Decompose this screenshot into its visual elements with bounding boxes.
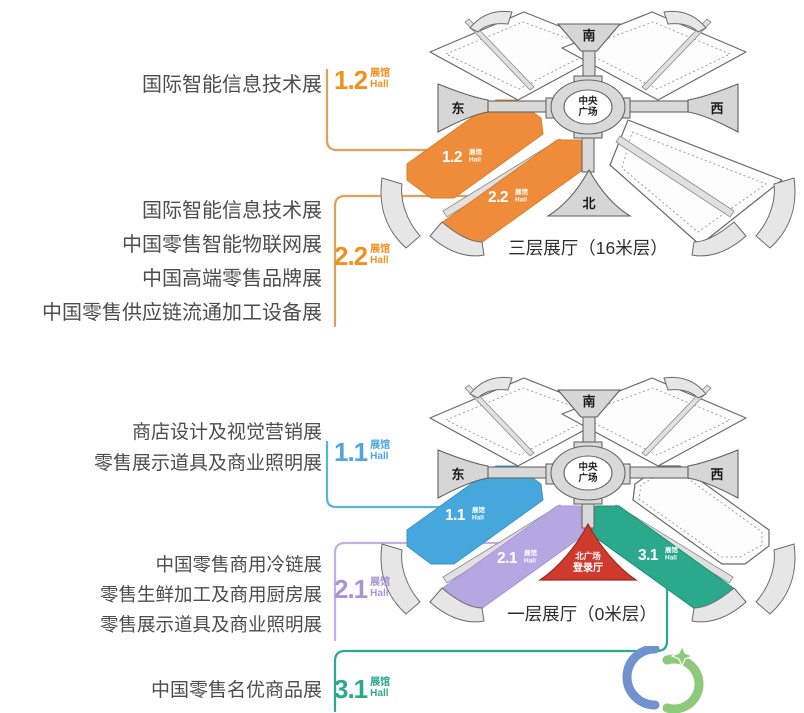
corridor-east <box>482 101 546 112</box>
svg-text:1.1: 1.1 <box>445 507 466 524</box>
svg-text:Hall: Hall <box>472 515 484 522</box>
svg-text:Hall: Hall <box>469 157 481 164</box>
svg-text:2.1: 2.1 <box>497 550 518 567</box>
organizer-logo <box>612 646 708 713</box>
central-plaza-label-1: 中央 <box>578 461 598 473</box>
central-plaza-label-1: 中央 <box>578 95 598 107</box>
map-level-16m: 中央 广场 南 北 东 西 1.2 展馆 Hall 2.2 展馆 Hall 三层… <box>370 2 804 302</box>
exhibit-list-hall-2.2: 国际智能信息技术展 中国零售智能物联网展 中国高端零售品牌展 中国零售供应链流通… <box>0 194 322 330</box>
hall-badge-1.1: 1.1 展馆Hall <box>334 439 390 465</box>
svg-text:展馆: 展馆 <box>514 187 529 196</box>
exhibit-name: 零售展示道具及商业照明展 <box>0 610 322 640</box>
wedge-sw-outer <box>381 178 420 248</box>
caption-level-16m: 三层展厅（16米层） <box>508 238 667 258</box>
exhibit-name: 中国零售商用冷链展 <box>0 550 322 580</box>
hall-badge-2.2: 2.2 展馆Hall <box>334 243 390 269</box>
central-plaza-label-2: 广场 <box>578 106 598 118</box>
exhibit-name: 零售展示道具及商业照明展 <box>0 448 322 479</box>
hall-badge-1.2: 1.2 展馆Hall <box>334 67 390 93</box>
corridor-north <box>582 134 594 172</box>
svg-text:Hall: Hall <box>524 558 536 565</box>
wedge-se-outer <box>756 544 795 614</box>
entry-hall-label-2: 登录厅 <box>572 561 603 574</box>
central-plaza-label-2: 广场 <box>578 472 598 484</box>
svg-text:展馆: 展馆 <box>468 147 483 156</box>
corridor-west <box>630 467 694 478</box>
svg-text:展馆: 展馆 <box>471 505 486 514</box>
svg-text:Hall: Hall <box>665 555 677 562</box>
svg-text:3.1: 3.1 <box>638 547 659 564</box>
exhibit-name: 商店设计及视觉营销展 <box>0 417 322 448</box>
svg-text:展馆: 展馆 <box>523 548 538 557</box>
corridor-west <box>630 101 694 112</box>
corridor-south <box>583 414 595 444</box>
central-plaza: 中央 广场 <box>546 76 630 138</box>
exhibit-list-hall-3.1: 中国零售名优商品展 <box>0 678 322 704</box>
hall-badge-3.1: 3.1 展馆Hall <box>334 676 390 702</box>
svg-text:2.2: 2.2 <box>488 189 508 206</box>
south-label: 南 <box>582 394 595 409</box>
lobe-southeast <box>610 120 782 245</box>
exhibit-name: 中国零售智能物联网展 <box>0 228 322 262</box>
exhibit-name: 零售生鲜加工及商用厨房展 <box>0 580 322 610</box>
north-label: 北 <box>582 196 595 211</box>
exhibit-list-hall-1.2: 国际智能信息技术展 <box>0 72 322 98</box>
east-label: 东 <box>451 101 464 116</box>
exhibit-name: 国际智能信息技术展 <box>0 72 322 98</box>
exhibit-name: 中国零售供应链流通加工设备展 <box>0 296 322 330</box>
map-level-0m: 中央 广场 北广场 登录厅 南 东 西 1.1 展馆 Hall 2.1 展馆 H… <box>370 368 804 668</box>
svg-text:1.2: 1.2 <box>442 149 462 166</box>
south-label: 南 <box>582 28 595 43</box>
entry-hall-label-1: 北广场 <box>575 551 601 561</box>
exhibit-list-hall-2.1: 中国零售商用冷链展 零售生鲜加工及商用厨房展 零售展示道具及商业照明展 <box>0 550 322 640</box>
hall-badge-2.1: 2.1 展馆Hall <box>334 576 390 602</box>
central-plaza: 中央 广场 <box>546 442 630 504</box>
svg-text:展馆: 展馆 <box>664 545 679 554</box>
logo-green-crescent <box>667 659 699 709</box>
corridor-east <box>482 467 546 478</box>
west-label: 西 <box>710 101 723 116</box>
exhibit-name: 国际智能信息技术展 <box>0 194 322 228</box>
svg-text:Hall: Hall <box>515 197 527 204</box>
corridor-south <box>583 48 595 78</box>
exhibit-list-hall-1.1: 商店设计及视觉营销展 零售展示道具及商业照明展 <box>0 417 322 479</box>
east-label: 东 <box>451 467 464 482</box>
exhibit-name: 中国零售名优商品展 <box>0 678 322 704</box>
exhibition-floorplan-infographic: 中央 广场 南 北 东 西 1.2 展馆 Hall 2.2 展馆 Hall 三层… <box>0 0 804 713</box>
caption-level-0m: 一层展厅（0米层） <box>507 604 657 624</box>
exhibit-name: 中国高端零售品牌展 <box>0 262 322 296</box>
logo-blue-crescent <box>627 649 655 705</box>
west-label: 西 <box>710 467 723 482</box>
